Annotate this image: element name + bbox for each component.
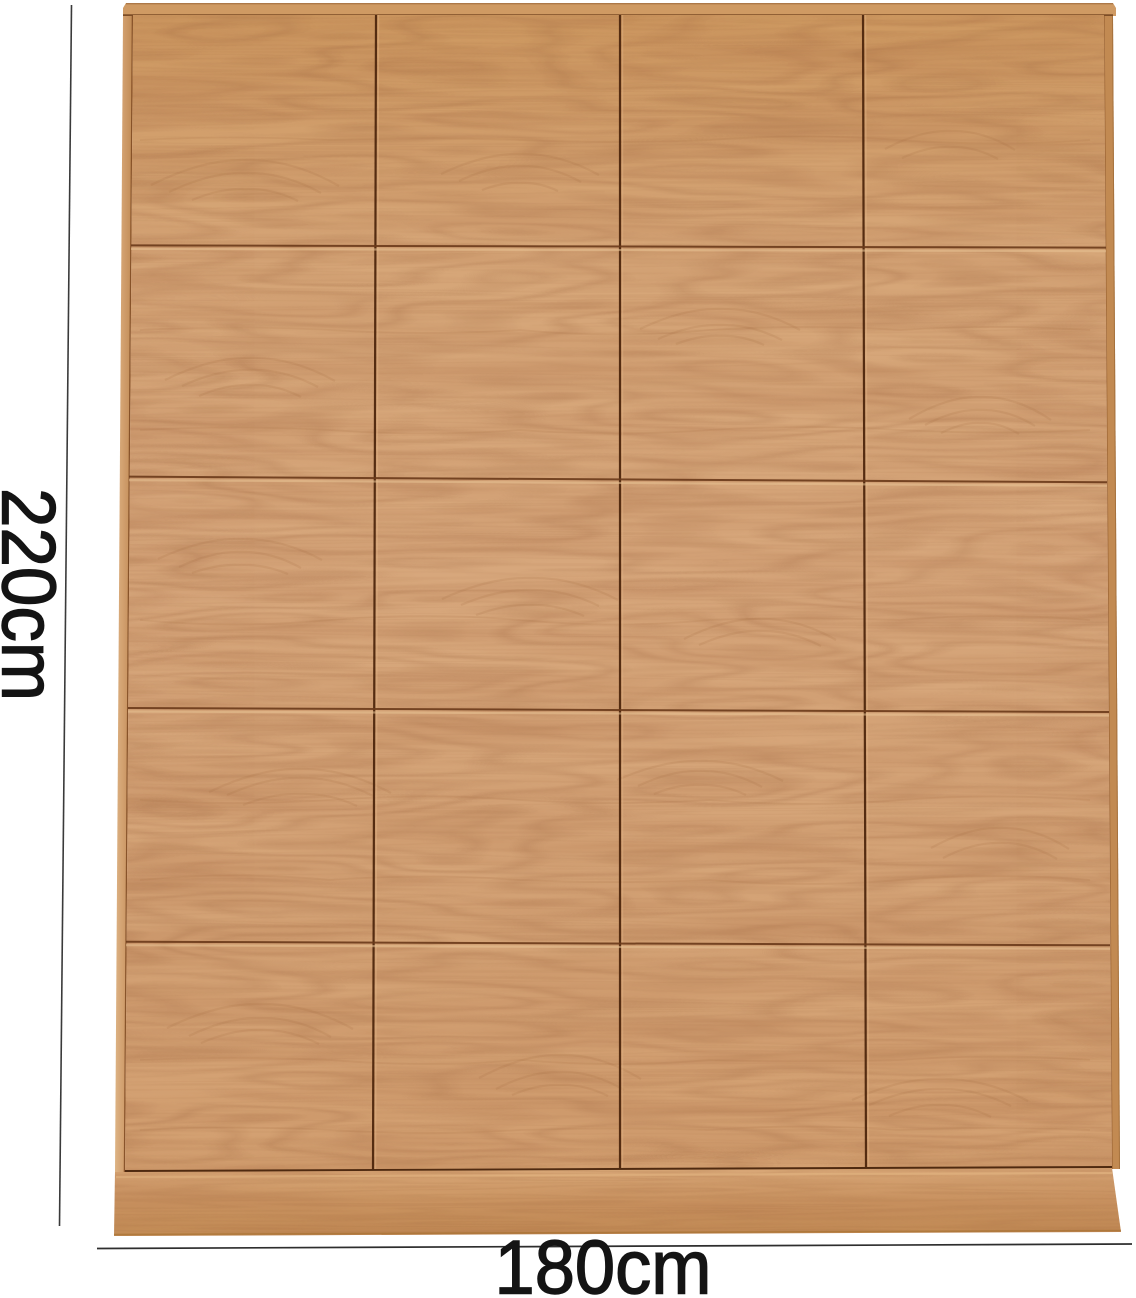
svg-text:220cm: 220cm [0,488,71,701]
svg-text:180cm: 180cm [495,1226,712,1298]
